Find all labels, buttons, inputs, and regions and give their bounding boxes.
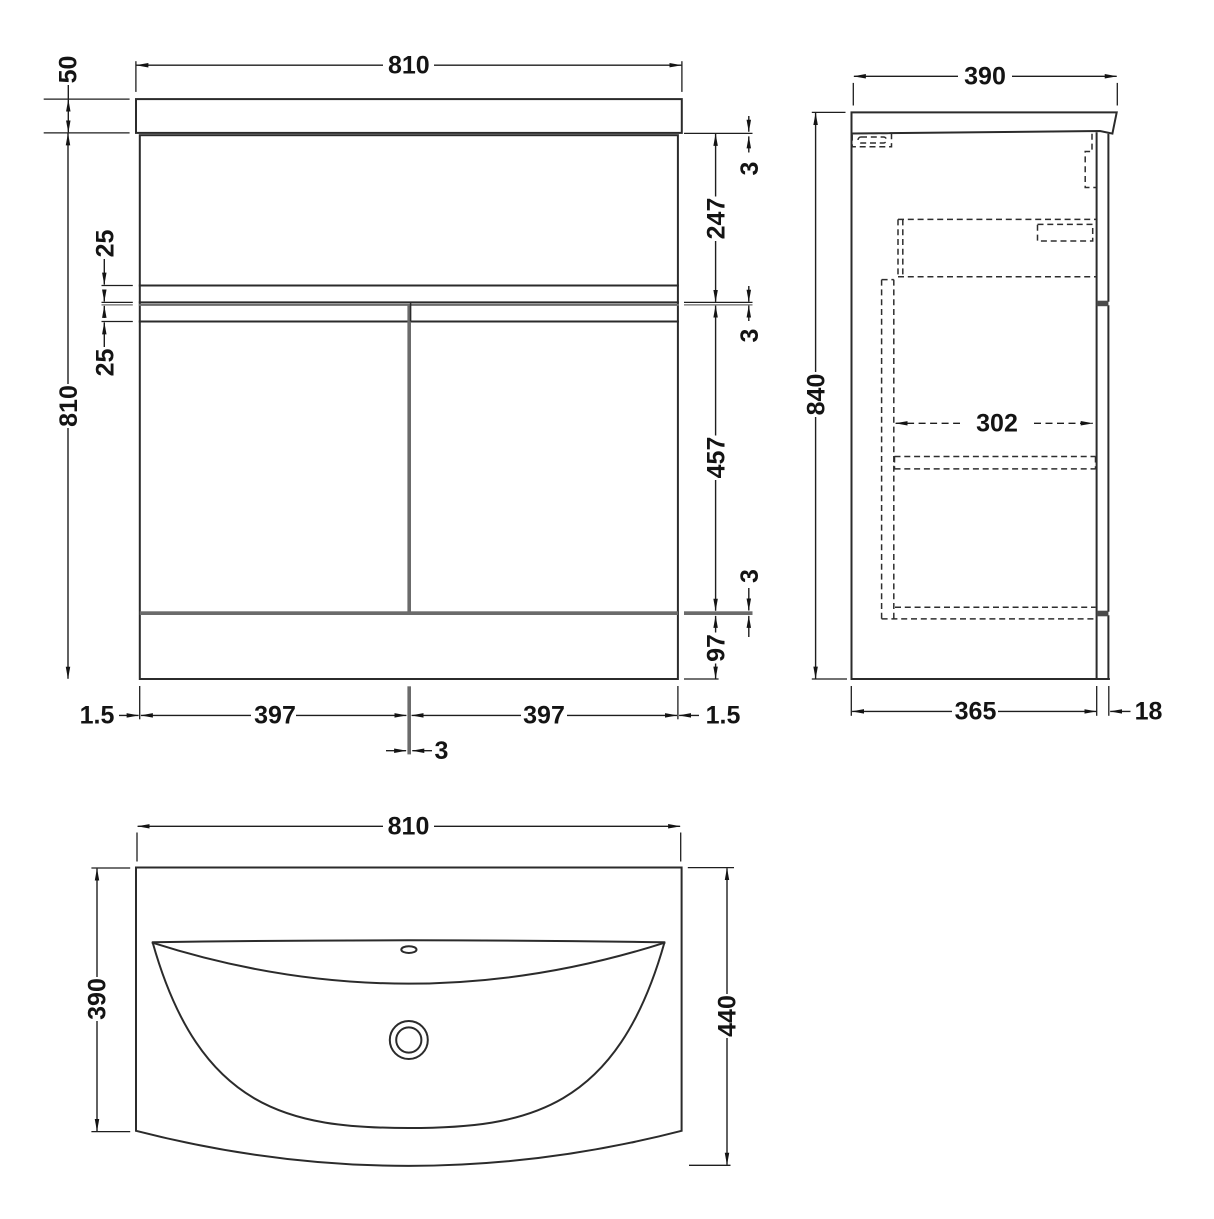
svg-text:810: 810 <box>388 52 430 80</box>
svg-text:840: 840 <box>803 374 831 416</box>
svg-text:390: 390 <box>84 978 112 1020</box>
svg-text:3: 3 <box>435 737 449 765</box>
svg-text:302: 302 <box>976 410 1018 438</box>
svg-text:810: 810 <box>55 385 83 427</box>
svg-text:810: 810 <box>388 813 430 841</box>
svg-text:397: 397 <box>254 702 296 730</box>
svg-text:440: 440 <box>714 995 742 1037</box>
svg-text:25: 25 <box>91 349 119 377</box>
svg-text:1.5: 1.5 <box>80 702 115 730</box>
svg-text:397: 397 <box>523 702 565 730</box>
svg-text:97: 97 <box>703 634 731 662</box>
svg-text:18: 18 <box>1135 698 1163 726</box>
svg-text:50: 50 <box>55 56 83 84</box>
svg-text:457: 457 <box>703 437 731 479</box>
svg-text:365: 365 <box>955 698 997 726</box>
svg-text:247: 247 <box>703 198 731 240</box>
svg-text:3: 3 <box>736 329 764 343</box>
svg-text:1.5: 1.5 <box>706 702 741 730</box>
svg-text:3: 3 <box>736 569 764 583</box>
svg-text:3: 3 <box>736 162 764 176</box>
svg-text:390: 390 <box>964 63 1006 91</box>
svg-text:25: 25 <box>91 230 119 258</box>
